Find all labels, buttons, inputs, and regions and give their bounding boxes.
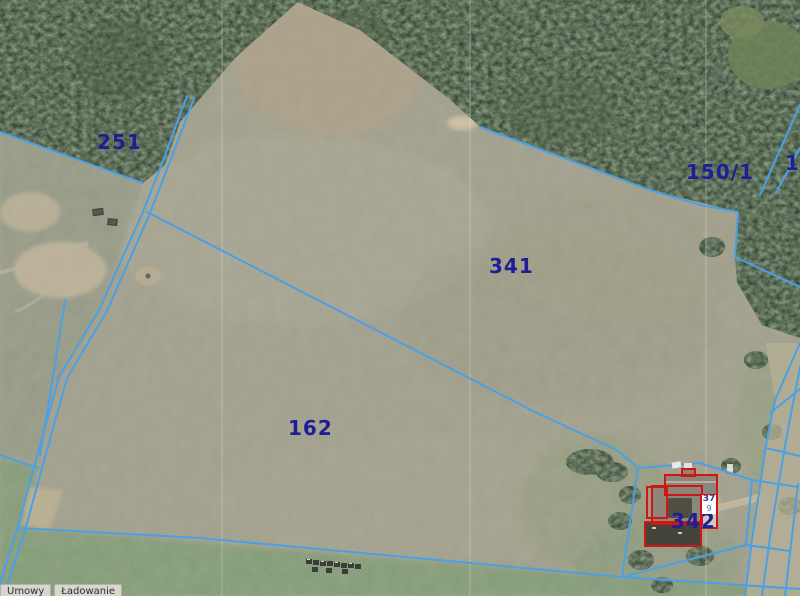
address-number: 37 (702, 495, 716, 504)
parcel-label-edge-partial: 1 (785, 151, 800, 175)
aerial-imagery (0, 0, 800, 596)
address-secondary: 9 (702, 504, 716, 513)
parcel-label-251: 251 (97, 130, 142, 154)
parcel-label-341: 341 (489, 254, 534, 278)
building-address-label: 37 9 (702, 495, 716, 514)
parcel-label-150-1: 150/1 (686, 160, 754, 184)
status-bar: Umowy Ładowanie (0, 584, 122, 596)
map-viewport[interactable]: 251 150/1 341 162 342 1 37 9 Umowy Ładow… (0, 0, 800, 596)
parcel-label-162: 162 (288, 416, 333, 440)
status-segment-umowy[interactable]: Umowy (0, 584, 51, 596)
status-segment-loading[interactable]: Ładowanie (54, 584, 122, 596)
